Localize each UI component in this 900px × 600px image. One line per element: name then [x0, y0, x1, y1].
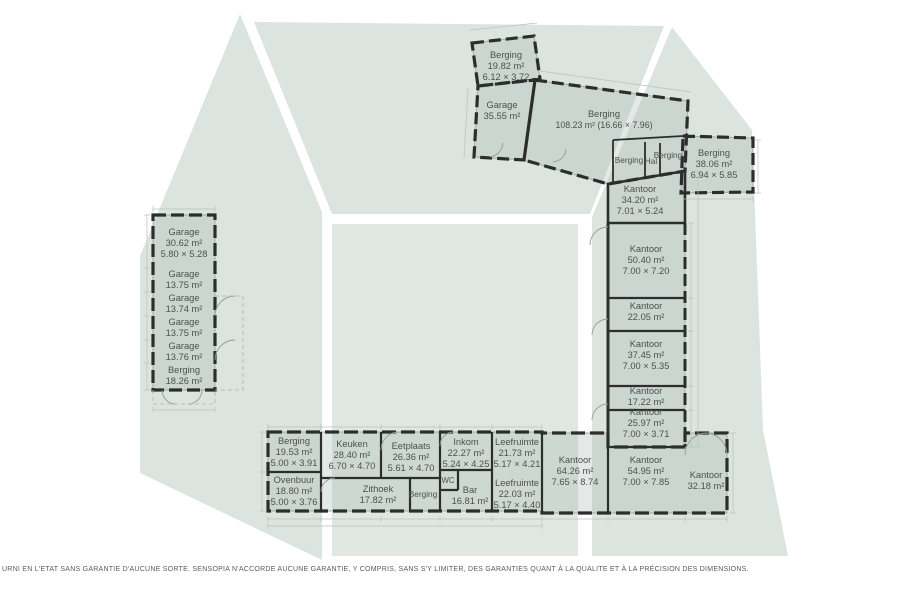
- room-label-garage-1375a: Garage 13.75 m²: [166, 269, 203, 290]
- floorplan-canvas: Berging 19.82 m² 6.12 × 3.72 Garage 35.5…: [0, 0, 900, 600]
- room-label-berging-1826: Berging 18.26 m²: [166, 365, 203, 386]
- room-label-garage-1374: Garage 13.74 m²: [166, 293, 203, 314]
- room-area: 108.23 m² (16.66 × 7.96): [555, 120, 652, 130]
- room-label-wc: WC: [442, 476, 455, 485]
- room-area: 26.36 m²: [393, 452, 430, 462]
- room-label-kantoor-3218: Kantoor 32.18 m²: [688, 470, 725, 491]
- room-name: Berging: [168, 365, 200, 375]
- room-dims: 5.61 × 4.70: [388, 463, 435, 473]
- room-label-garage-1376: Garage 13.76 m²: [166, 341, 203, 362]
- room-area: 28.40 m²: [334, 450, 371, 460]
- room-label-zithoek: Zithoek 17.82 m²: [360, 484, 397, 505]
- room-name: Kantoor: [690, 470, 723, 480]
- room-dims: 5.00 × 3.91: [271, 458, 318, 468]
- room-label-berging-small-1: Berging: [615, 155, 644, 165]
- room-area: 16.81 m²: [452, 496, 489, 506]
- room-name: Garage: [168, 269, 199, 279]
- room-name: Berging: [588, 109, 620, 119]
- room-name: Kantoor: [630, 407, 663, 417]
- room-area: 13.74 m²: [166, 304, 203, 314]
- room-name: Kantoor: [630, 301, 663, 311]
- disclaimer-text: URNI EN L'ETAT SANS GARANTIE D'AUCUNE SO…: [2, 564, 749, 573]
- room-area: 13.75 m²: [166, 328, 203, 338]
- room-area: 35.55 m²: [484, 111, 521, 121]
- room-dims: 7.00 × 3.71: [623, 429, 670, 439]
- room-dims: 7.01 × 5.24: [617, 206, 664, 216]
- room-dims: 6.70 × 4.70: [329, 461, 376, 471]
- room-area: 38.06 m²: [696, 159, 733, 169]
- room-area: 18.80 m²: [276, 486, 313, 496]
- room-name: Garage: [168, 317, 199, 327]
- room-dims: 7.00 × 5.35: [623, 361, 670, 371]
- room-name: Berging: [698, 148, 730, 158]
- room-area: 54.95 m²: [628, 466, 665, 476]
- room-area: 30.62 m²: [166, 238, 203, 248]
- room-name: Garage: [486, 100, 517, 110]
- room-label-berging-small-2: Berging: [654, 150, 683, 160]
- room-label-leefruimte-2173: Leefruimte 21.73 m² 5.17 × 4.21: [494, 437, 541, 469]
- room-name: Garage: [168, 293, 199, 303]
- room-name: Kantoor: [630, 386, 663, 396]
- room-dims: 5.17 × 4.40: [494, 500, 541, 510]
- room-area: 19.53 m²: [276, 447, 313, 457]
- room-area: 22.27 m²: [448, 448, 485, 458]
- room-area: 19.82 m²: [488, 61, 525, 71]
- room-name: Keuken: [336, 439, 368, 449]
- room-dims: 6.12 × 3.72: [483, 72, 530, 82]
- room-area: 22.05 m²: [628, 312, 665, 322]
- room-label-kantoor-1722: Kantoor 17.22 m²: [628, 386, 665, 407]
- room-name: Eetplaats: [392, 441, 431, 451]
- room-name: Leefruimte: [495, 478, 539, 488]
- room-label-ovenbuur: Ovenbuur 18.80 m² 5.00 × 3.76: [271, 475, 318, 507]
- room-dims: 5.17 × 4.21: [494, 459, 541, 469]
- room-name: Garage: [168, 227, 199, 237]
- room-name: Kantoor: [630, 455, 663, 465]
- room-area: 22.03 m²: [499, 489, 536, 499]
- room-label-berging-klein: Berging: [409, 489, 438, 499]
- room-area: 32.18 m²: [688, 481, 725, 491]
- room-area: 13.76 m²: [166, 352, 203, 362]
- room-dims: 5.80 × 5.28: [161, 249, 208, 259]
- room-area: 13.75 m²: [166, 280, 203, 290]
- room-dims: 5.24 × 4.25: [443, 459, 490, 469]
- room-label-garage-1375b: Garage 13.75 m²: [166, 317, 203, 338]
- room-dims: 7.00 × 7.85: [623, 477, 670, 487]
- room-area: 17.82 m²: [360, 495, 397, 505]
- room-area: 18.26 m²: [166, 376, 203, 386]
- room-label-garage-3555: Garage 35.55 m²: [484, 100, 521, 121]
- room-area: 17.22 m²: [628, 397, 665, 407]
- room-name: Berging: [278, 436, 310, 446]
- room-area: 37.45 m²: [628, 350, 665, 360]
- room-dims: 6.94 × 5.85: [691, 170, 738, 180]
- room-name: Zithoek: [363, 484, 394, 494]
- room-area: 34.20 m²: [622, 195, 659, 205]
- room-label-eetplaats: Eetplaats 26.36 m² 5.61 × 4.70: [388, 441, 435, 473]
- room-name: Garage: [168, 341, 199, 351]
- room-dims: 7.65 × 8.74: [552, 477, 599, 487]
- room-label-kantoor-2205: Kantoor 22.05 m²: [628, 301, 665, 322]
- room-area: 21.73 m²: [499, 448, 536, 458]
- room-name: Bar: [463, 485, 477, 495]
- room-dims: 7.00 × 7.20: [623, 266, 670, 276]
- room-area: 50.40 m²: [628, 255, 665, 265]
- room-dims: 5.00 × 3.76: [271, 497, 318, 507]
- room-name: Kantoor: [559, 455, 592, 465]
- room-name: Ovenbuur: [274, 475, 315, 485]
- room-name: Kantoor: [630, 244, 663, 254]
- room-name: Inkom: [453, 437, 479, 447]
- room-area: 64.26 m²: [557, 466, 594, 476]
- room-name: Kantoor: [630, 339, 663, 349]
- floorplan-page: Berging 19.82 m² 6.12 × 3.72 Garage 35.5…: [0, 0, 900, 600]
- room-area: 25.97 m²: [628, 418, 665, 428]
- room-label-leefruimte-2203: Leefruimte 22.03 m² 5.17 × 4.40: [494, 478, 541, 510]
- room-name: Leefruimte: [495, 437, 539, 447]
- room-name: Kantoor: [624, 184, 657, 194]
- room-name: Berging: [490, 50, 522, 60]
